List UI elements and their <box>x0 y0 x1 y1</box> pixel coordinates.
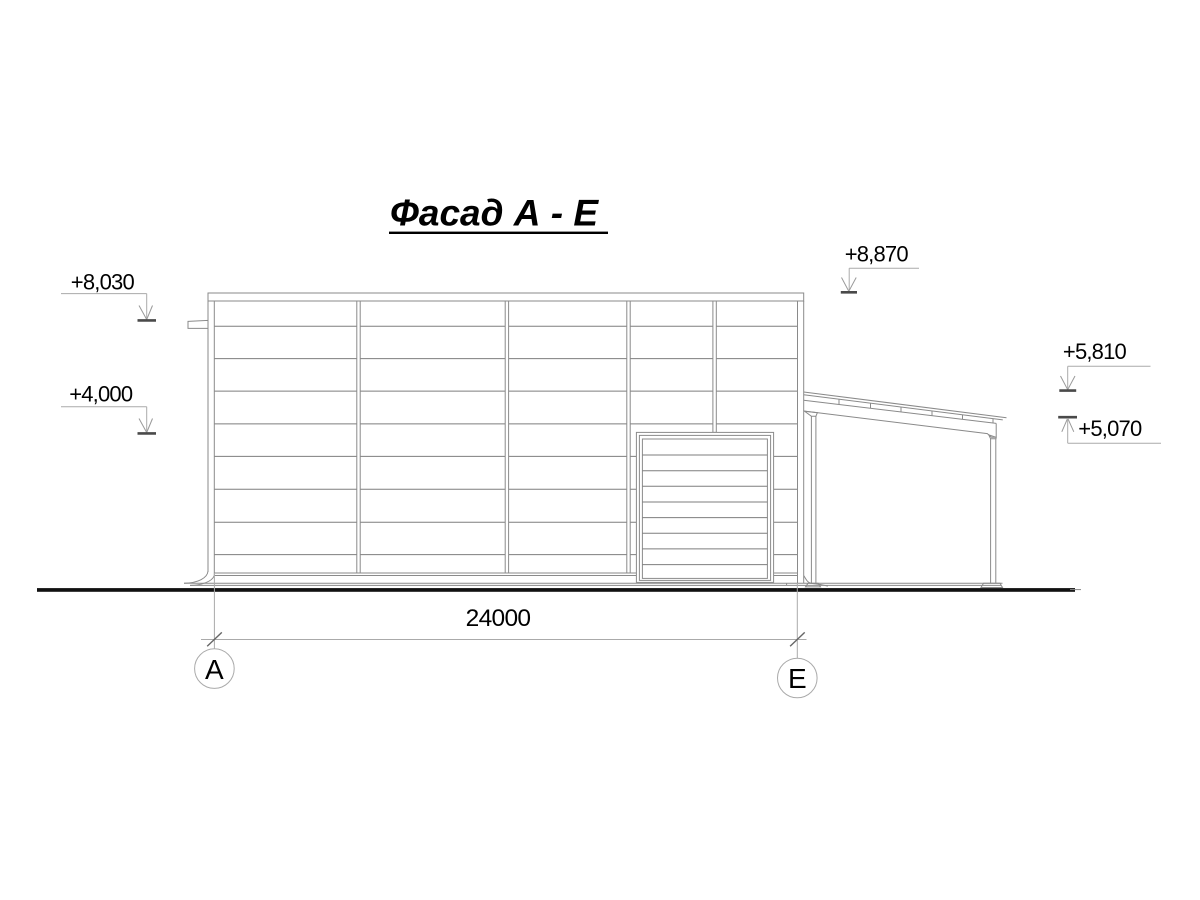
svg-text:+8,030: +8,030 <box>71 269 135 294</box>
svg-text:+5,810: +5,810 <box>1063 339 1127 364</box>
svg-text:Е: Е <box>788 663 807 694</box>
svg-text:+4,000: +4,000 <box>69 381 133 406</box>
svg-text:+8,870: +8,870 <box>845 241 909 266</box>
svg-text:+5,070: +5,070 <box>1078 416 1142 441</box>
svg-text:А: А <box>205 654 224 685</box>
svg-text:Фасад А - Е: Фасад А - Е <box>390 193 599 234</box>
svg-text:24000: 24000 <box>466 605 531 632</box>
